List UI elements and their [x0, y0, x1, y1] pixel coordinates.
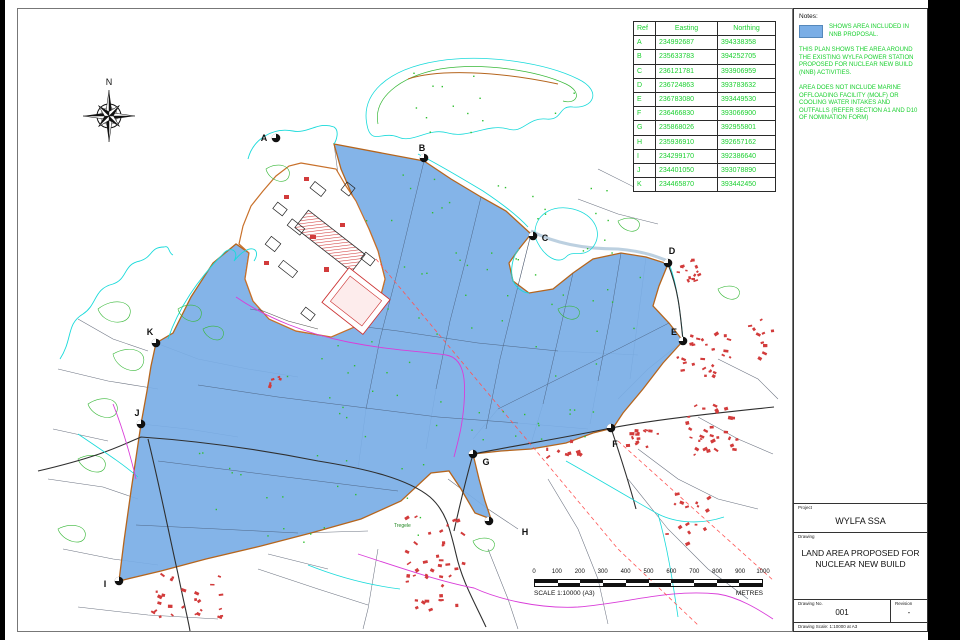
drawing-scale-note: Drawing Scale: 1:10000 at A3: [794, 622, 927, 631]
drawing-title: LAND AREA PROPOSED FOR NUCLEAR NEW BUILD: [798, 548, 923, 569]
scale-tick: 900: [735, 569, 745, 575]
boundary-marker: D: [664, 246, 676, 267]
table-header: Ref: [634, 22, 656, 36]
table-row: E236783080393449530: [634, 92, 776, 106]
swatch-caption: SHOWS AREA INCLUDED IN NNB PROPOSAL.: [829, 24, 921, 39]
scale-tick: 300: [598, 569, 608, 575]
table-row: D236724863393783632: [634, 78, 776, 92]
scale-bar-blocks: [534, 579, 763, 587]
svg-text:A: A: [261, 133, 268, 143]
table-row: B235633783394252705: [634, 50, 776, 64]
notes-paragraph-1: THIS PLAN SHOWS THE AREA AROUND THE EXIS…: [799, 47, 922, 77]
place-labels: Tregele: [394, 523, 411, 529]
table-row: H235936910392657162: [634, 135, 776, 149]
table-header: Northing: [718, 22, 776, 36]
drawing-no-value: 001: [798, 608, 886, 617]
drawing-no-label: Drawing No.: [798, 601, 886, 606]
boundary-marker: I: [104, 577, 124, 589]
table-header: Easting: [656, 22, 718, 36]
north-label: N: [106, 77, 113, 87]
project-name: WYLFA SSA: [798, 516, 923, 526]
svg-text:C: C: [542, 233, 549, 243]
scale-units: METRES: [736, 590, 763, 597]
svg-text:G: G: [482, 457, 489, 467]
nnb-area-polygon: [119, 144, 683, 581]
scale-tick: 200: [575, 569, 585, 575]
scale-tick: 100: [552, 569, 562, 575]
place-label: Tregele: [394, 523, 411, 529]
scale-tick: 500: [643, 569, 653, 575]
table-row: A234992687394338358: [634, 36, 776, 50]
boundary-marker: K: [147, 327, 161, 347]
svg-text:I: I: [104, 579, 107, 589]
scale-tick: 800: [712, 569, 722, 575]
scale-tick: 600: [666, 569, 676, 575]
boundary-marker: H: [485, 517, 529, 537]
svg-text:H: H: [522, 527, 529, 537]
revision-label: Revision: [895, 601, 923, 606]
boundary-marker: A: [261, 133, 281, 143]
coordinate-table: RefEastingNorthing A234992687394338358B2…: [633, 21, 776, 192]
svg-text:J: J: [134, 408, 139, 418]
scale-tick: 1000: [756, 569, 769, 575]
notes-paragraph-2: AREA DOES NOT INCLUDE MARINE OFFLOADING …: [799, 85, 922, 123]
scale-tick: 700: [689, 569, 699, 575]
table-row: G235868026392955801: [634, 121, 776, 135]
svg-text:K: K: [147, 327, 154, 337]
svg-text:E: E: [671, 327, 677, 337]
table-row: J234401050393078890: [634, 163, 776, 177]
svg-text:D: D: [669, 246, 676, 256]
scale-bar: 01002003004005006007008009001000 SCALE 1…: [534, 569, 763, 603]
nnb-area-swatch: [799, 25, 823, 38]
drawing-sheet: N Tregele ABCDEFGHIJK RefEastingNorthing…: [5, 0, 928, 640]
compass-rose: [83, 90, 135, 142]
table-row: K234465870393442450: [634, 178, 776, 192]
notes-title: Notes:: [799, 13, 922, 20]
revision-value: -: [895, 608, 923, 617]
boundary-marker: B: [419, 143, 429, 162]
svg-text:B: B: [419, 143, 426, 153]
notes-panel: Notes: SHOWS AREA INCLUDED IN NNB PROPOS…: [794, 9, 927, 503]
scale-tick: 0: [532, 569, 535, 575]
map-frame: N Tregele ABCDEFGHIJK RefEastingNorthing…: [17, 8, 793, 632]
scale-bar-ticks: 01002003004005006007008009001000: [534, 569, 763, 577]
project-label: Project: [798, 505, 923, 510]
svg-text:F: F: [612, 439, 618, 449]
table-row: C236121781393906959: [634, 64, 776, 78]
scale-text: SCALE 1:10000 (A3): [534, 590, 595, 597]
table-row: F236466830393066900: [634, 107, 776, 121]
drawing-label: Drawing: [798, 534, 923, 539]
table-row: I234299170392386640: [634, 149, 776, 163]
scale-tick: 400: [621, 569, 631, 575]
title-block-panel: Notes: SHOWS AREA INCLUDED IN NNB PROPOS…: [793, 8, 928, 632]
